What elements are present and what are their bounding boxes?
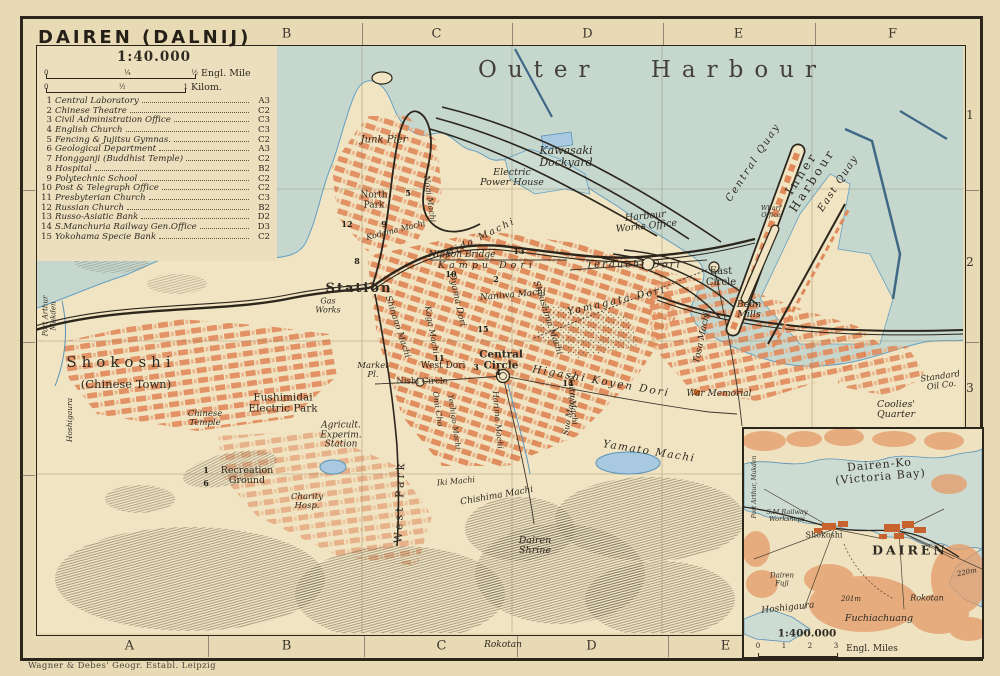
legend-item: 5Fencing & Jujitsu Gymnas.C2 [38,135,270,145]
legend-block: DAIREN (DALNIJ) 1:40.000 0 ¼ ½ Engl. Mil… [38,27,270,241]
legend-name: Russian Church [55,203,124,213]
legend-name: Polytechnic School [55,174,137,184]
legend-name: Presbyterian Church [55,193,146,203]
legend-leader [186,160,249,161]
ref-marker: 10 [445,269,456,279]
label-fushimidai-electric-park: Fushimidai Electric Park [248,393,317,416]
ref-marker: 14 [562,378,573,388]
mile-bar-unit: Engl. Mile [201,68,251,79]
mile-tick: ½ [191,69,198,77]
label-port-arthur-mukden: Port Arthur Mukden [42,296,57,337]
grid-letter-top: B [282,27,293,42]
inset-scale-bar [758,651,838,657]
grid-number-right: 3 [966,381,974,395]
grid-tick [815,23,816,45]
legend-leader [126,131,249,132]
inset-bar-tick: 2 [808,642,812,650]
label-station: Station [326,282,393,296]
legend-ref: B2 [252,164,270,174]
legend-name: Civil Administration Office [55,115,171,125]
map-scale: 1:40.000 [38,49,270,65]
legend-name: Central Laboratory [55,96,139,106]
label-agricult-experim-station: Agricult. Experim. Station [320,421,361,450]
legend-item: 15Yokohama Specie BankC2 [38,232,270,242]
map-page: B C D E F A B C D E 2 3 4 1 2 3 [0,0,1000,676]
legend-item: 7Hongganji (Buddhist Temple)C2 [38,154,270,164]
legend-ref: C3 [252,125,270,135]
label-war-memorial: War Memorial [687,390,752,400]
legend-ref: D2 [252,212,270,222]
grid-tick [21,475,35,476]
inset-scale-text: 1:400.000 [778,628,837,639]
inset-label-shokoshi: Shokoshi [806,532,843,541]
legend-num: 6 [38,144,52,154]
grid-letter-top: C [432,27,443,42]
ref-marker: 4 [495,367,501,377]
legend-name: English Church [55,125,123,135]
legend-num: 15 [38,232,52,242]
label-coolies-quarter: Coolies' Quarter [877,400,915,421]
label-rokotan: Rokotan [484,641,522,651]
inset-label-rokotan: Rokotan [910,595,944,604]
label-market-pl: Market Pl. [357,362,388,380]
legend-item: 2Chinese TheatreC2 [38,106,270,116]
inset-bar-tick: 1 [782,642,786,650]
legend-leader [200,228,249,229]
legend-leader [159,150,249,151]
legend-num: 4 [38,125,52,135]
grid-tick [21,342,35,343]
legend-num: 10 [38,183,52,193]
label-charity-hosp: Charity Hosp. [291,493,323,511]
legend-num: 8 [38,164,52,174]
inset-label-dairen-fuji: Dairen Fuji [770,572,794,587]
legend-name: Russo-Asiatic Bank [55,212,138,222]
legend-leader [140,180,249,181]
ref-marker: 15 [477,324,488,334]
km-scale-bar: 0 ½ 1 Kilom. [46,82,270,93]
legend-item: 1Central LaboratoryA3 [38,96,270,106]
legend-name: Post & Telegraph Office [55,183,159,193]
ref-marker: 2 [493,274,499,284]
mile-tick: 0 [44,69,48,77]
km-tick: ½ [119,83,126,91]
ref-marker: 8 [354,256,360,266]
legend-name: Hospital [55,164,92,174]
grid-tick [21,190,35,191]
grid-tick [362,23,363,45]
legend-ref: C2 [252,135,270,145]
grid-tick [364,635,365,657]
grid-tick [668,635,669,657]
grid-tick [208,635,209,657]
legend-leader [130,112,249,113]
legend-leader [159,238,249,239]
label-dairen-shrine: Dairen Shrine [519,536,552,557]
ref-marker: 9 [381,219,387,229]
label-gas-works: Gas Works [315,297,340,314]
legend-name: Hongganji (Buddhist Temple) [55,154,183,164]
label-terauchi-dori: Terauchi Dori [586,261,681,272]
legend-leader [162,189,249,190]
legend-ref: C2 [252,106,270,116]
grid-number-right: 2 [966,255,974,269]
legend-ref: D3 [252,222,270,232]
ref-marker: 12 [341,219,352,229]
legend-ref: B2 [252,203,270,213]
km-bar-unit: Kilom. [191,82,222,93]
grid-letter-top: D [582,27,593,42]
label-kawasaki-dockyard: Kawasaki Dockyard [539,145,592,169]
legend-ref: A3 [252,144,270,154]
label-shokoshi: Shokoshi [66,354,175,370]
legend-ref: C2 [252,174,270,184]
km-bar-line: 0 ½ 1 [46,83,186,93]
legend-item: 11Presbyterian ChurchC3 [38,193,270,203]
legend-num: 7 [38,154,52,164]
ref-marker: 6 [203,478,209,488]
legend-ref: C3 [252,193,270,203]
label-chinese-temple: Chinese Temple [188,410,223,428]
legend-item: 8HospitalB2 [38,164,270,174]
label-nishi-circle: Nishi Circle [396,377,447,386]
inset-label-port-arthur-mukden: Port Arthur, Mukden [752,456,758,519]
label-junk-pier: Junk Pier [361,136,408,147]
legend-name: Chinese Theatre [55,106,127,116]
legend-leader [149,199,249,200]
label-outer-harbour: Outer Harbour [478,57,827,83]
map-title: DAIREN (DALNIJ) [38,27,270,48]
legend-ref: C2 [252,154,270,164]
legend-ref: C3 [252,115,270,125]
legend-name: Yokohama Specie Bank [55,232,156,242]
inset-bar-tick: 0 [756,642,760,650]
legend-item: 9Polytechnic SchoolC2 [38,174,270,184]
legend-leader [174,141,249,142]
legend-num: 13 [38,212,52,222]
ref-marker: 5 [405,188,411,198]
legend-leader [142,102,249,103]
legend-list: 1Central LaboratoryA3 2Chinese TheatreC2… [38,96,270,241]
grid-tick [663,23,664,45]
legend-leader [174,121,249,122]
legend-leader [95,170,249,171]
mile-tick: ¼ [124,69,131,77]
grid-letter-top: E [734,27,745,42]
ref-marker: 1 [203,465,209,475]
inset-label-dairen: DAIREN [872,543,948,557]
legend-ref: C2 [252,183,270,193]
label-electric-power-house: Electric Power House [480,168,544,189]
grid-letter-bottom: C [437,639,448,654]
legend-num: 5 [38,135,52,145]
legend-num: 3 [38,115,52,125]
inset-label-smr-workshops: S.M.Railway Workshops [766,509,807,523]
legend-name: Fencing & Jujitsu Gymnas. [55,135,171,145]
legend-num: 12 [38,203,52,213]
ref-marker: 13 [513,246,524,256]
label-bean-mills: Bean Mills [737,300,761,321]
inset-map: Dairen-Ko (Victoria Bay) Port Arthur, Mu… [742,427,984,659]
legend-num: 14 [38,222,52,232]
legend-ref: C2 [252,232,270,242]
km-tick: 0 [44,83,48,91]
legend-name: S.Manchuria Railway Gen.Office [55,222,197,232]
label-east-circle: East Circle [706,267,736,289]
grid-letter-bottom: B [282,639,293,654]
legend-name: Geological Department [55,144,156,154]
mile-scale-bar: 0 ¼ ½ Engl. Mile [46,68,270,79]
legend-num: 9 [38,174,52,184]
inset-bar-tick: 3 [834,642,838,650]
legend-item: 3Civil Administration OfficeC3 [38,115,270,125]
legend-item: 13Russo-Asiatic BankD2 [38,212,270,222]
legend-num: 11 [38,193,52,203]
legend-num: 1 [38,96,52,106]
grid-tick [965,342,979,343]
label-hoshigaura: Hoshigaura [66,398,74,442]
small-pond [320,460,346,474]
mile-bar-line: 0 ¼ ½ [46,69,196,79]
grid-letter-bottom: A [125,639,135,654]
ref-marker: 3 [473,362,479,372]
legend-item: 6Geological DepartmentA3 [38,144,270,154]
inset-bar-unit: Engl. Miles [846,645,898,655]
grid-tick [512,23,513,45]
legend-leader [141,218,249,219]
grid-letter-bottom: D [586,639,597,654]
label-west-dori: West Dori [421,362,466,372]
label-recreation-ground: Recreation Ground [221,466,274,487]
publisher-credit: Wagner & Debes' Geogr. Establ. Leipzig [28,661,216,671]
label-north-park: North Park [360,191,387,210]
legend-ref: A3 [252,96,270,106]
label-wharf-office: Wharf Office [761,205,781,219]
inset-label-fu chiachuang: Fuchiachuang [845,614,913,624]
legend-item: 4English ChurchC3 [38,125,270,135]
legend-item: 10Post & Telegraph OfficeC2 [38,183,270,193]
inset-label-201m: 201m [841,596,861,604]
grid-number-right: 1 [966,108,974,122]
km-tick: 1 [184,83,188,91]
legend-leader [127,209,249,210]
legend-num: 2 [38,106,52,116]
grid-tick [965,190,979,191]
label-chinese-town: (Chinese Town) [81,378,171,390]
legend-item: 14S.Manchuria Railway Gen.OfficeD3 [38,222,270,232]
legend-item: 12Russian ChurchB2 [38,203,270,213]
pier-head [372,72,392,84]
ref-marker: 11 [433,353,444,363]
grid-letter-bottom: E [721,639,732,654]
grid-letter-top: F [888,27,898,42]
